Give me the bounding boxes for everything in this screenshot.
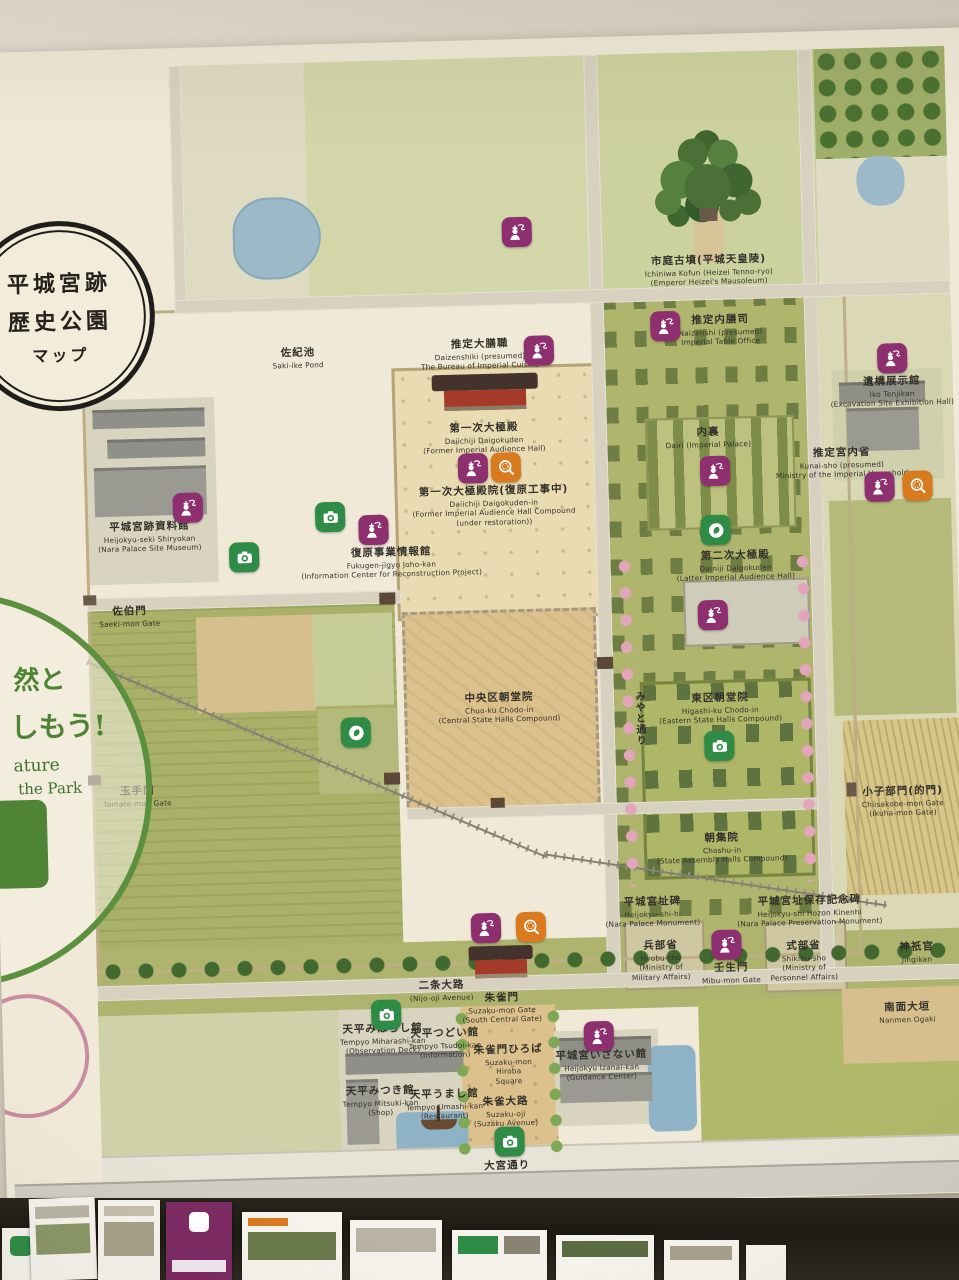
label-line: 天平つどい館 — [408, 1026, 481, 1042]
label-line: (Information) — [409, 1049, 482, 1060]
suzaku-mon-body — [475, 959, 527, 978]
map-label-iko-tenjikan: 遺構展示館Iko Tenjikan(Excavation Site Exhibi… — [830, 374, 954, 410]
label-line: Saki-ike Pond — [272, 360, 323, 371]
pamphlet-cover-art — [248, 1218, 288, 1226]
zone-southwest-lawn — [98, 1010, 342, 1166]
camera-glyph — [374, 1003, 398, 1027]
photo-spot-icon — [315, 502, 346, 533]
pamphlet — [746, 1245, 786, 1280]
label-line: 佐紀池 — [272, 346, 324, 361]
map-label-suzaku-mon: 朱雀門Suzaku-mon Gate(South Central Gate) — [462, 991, 542, 1026]
pamphlet-cover-art — [104, 1206, 154, 1216]
person-glyph — [474, 916, 498, 940]
map-label-mibu-mon: 壬生門Mibu-mon Gate — [702, 961, 761, 986]
guide-spot-icon — [700, 456, 731, 487]
nature-sign-en-2: the Park — [18, 779, 82, 799]
map-label-izanai-kan: 平城宮いざない館Heijokyu Izanai-kan(Guidance Cen… — [555, 1048, 648, 1083]
label-line: 南面大垣 — [879, 1000, 936, 1015]
map-label-shiryokan: 平城宮跡資料館Heijokyu-seki Shiryokan(Nara Pala… — [97, 519, 201, 554]
nature-sign-jp-1: 然と — [13, 659, 66, 697]
pamphlet-cover-art — [356, 1228, 436, 1252]
person-glyph — [868, 475, 892, 499]
guide-spot-icon — [711, 929, 742, 960]
person-glyph — [587, 1024, 611, 1048]
pamphlet — [166, 1202, 232, 1280]
leaf-glyph — [704, 518, 728, 542]
map-label-jingikan: 神祇官Jingikan — [899, 940, 934, 964]
map-label-fukugen-joho-kan: 復原事業情報館Fukugen-jigyo Joho-kan(Informatio… — [301, 544, 483, 581]
label-line: Saeki-mon Gate — [99, 618, 161, 629]
map-label-hozon-kinenhi: 平城宮址保存記念碑Heijokyu-shi Hozon Kinenhi(Nara… — [737, 893, 883, 929]
pamphlet-cover-art — [562, 1241, 648, 1257]
pamphlet-cover-art — [172, 1260, 226, 1272]
person-glyph — [880, 347, 904, 371]
map-label-dairi: 内裏Dairi (Imperial Palace) — [665, 425, 751, 450]
pamphlet — [242, 1212, 342, 1280]
viewing-spot-icon — [902, 470, 933, 501]
pamphlet-cover-art — [670, 1246, 732, 1260]
pamphlet — [29, 1197, 98, 1280]
map-label-tempyo-umashi-kan: 天平うまし館Tempyo Umashi-kan(Restaurant) — [406, 1087, 484, 1122]
leaf-glyph — [344, 721, 368, 745]
north-pond — [856, 155, 905, 206]
label-line: Military Affairs) — [632, 971, 691, 982]
magnifier-glyph — [494, 456, 518, 480]
pamphlet-cover-art — [35, 1223, 90, 1255]
daigokuden-hall-body — [444, 389, 526, 411]
map-label-tempyo-tsudoi-kan: 天平つどい館Tempyo Tsudoi-kan(Information) — [408, 1026, 481, 1060]
brochure-shelf — [0, 1198, 959, 1280]
guide-spot-icon — [524, 335, 555, 366]
pamphlet-cover-art — [10, 1236, 32, 1256]
guide-spot-icon — [358, 515, 389, 546]
pamphlet-cover-art — [104, 1222, 154, 1256]
label-line: Nanmen Ogaki — [879, 1014, 936, 1025]
map-label-choshu-in: 朝集院Choshu-in(State Assembly Halls Compou… — [656, 830, 788, 866]
guide-spot-icon — [650, 311, 681, 342]
camera-glyph — [318, 505, 342, 529]
pamphlet — [452, 1230, 547, 1280]
saeki-mon-gate-mark — [83, 595, 96, 605]
map-label-dainiji-daigokuden: 第二次大極殿Dainiji Daigokuden(Latter Imperial… — [676, 548, 795, 584]
person-glyph — [703, 459, 727, 483]
person-glyph — [701, 603, 725, 627]
camera-glyph — [498, 1130, 522, 1154]
map-label-ichiniwa-kofun: 市庭古墳(平城天皇陵)Ichiniwa Kofun (Heizei Tenno-… — [644, 252, 773, 288]
zone-top-right-grove — [813, 46, 947, 159]
map-label-naizenshi: 推定内膳司Naizenshi (presumed)Imperial Table … — [678, 313, 763, 348]
map-label-miyato-dori: みやと通り — [632, 691, 646, 746]
map-label-daiichiji-daigokuden: 第一次大極殿Daiichiji Daigokuden(Former Imperi… — [422, 420, 545, 456]
map-label-suzaku-oji: 朱雀大路Suzaku-oji(Suzaku Avenue) — [473, 1095, 538, 1129]
map-title-sign: 平城宮跡 歴史公園 マップ — [0, 219, 157, 414]
guide-spot-icon — [864, 471, 895, 502]
map-label-higashi-ku-chodo-in: 東区朝堂院Higashi-ku Chodo-in(Eastern State H… — [658, 690, 782, 726]
pamphlet — [350, 1220, 442, 1280]
title-line-1: 平城宮跡 — [7, 265, 112, 300]
label-line: Mibu-mon Gate — [702, 975, 761, 986]
map-label-nanmen-ogaki: 南面大垣Nanmen Ogaki — [879, 1000, 936, 1025]
map-label-heijokyu-shi-hi: 平城宮址碑Heijokyu-shi-hi(Nara Palace Monumen… — [605, 895, 701, 930]
label-line: 神祇官 — [899, 940, 934, 955]
zone-top-center-field — [303, 55, 594, 307]
izanai-pond — [647, 1045, 697, 1132]
map-label-hyobu-sho: 兵部省Hyobu-sho(Ministry ofMilitary Affairs… — [631, 939, 691, 983]
nature-spot-icon — [340, 717, 371, 748]
map-label-saeki-mon: 佐伯門Saeki-mon Gate — [99, 605, 161, 630]
photo-spot-icon — [229, 542, 260, 573]
zone-southeast-dirt — [842, 986, 959, 1064]
nature-sign-en-1: ature — [13, 755, 60, 776]
map-label-saki-ike-pond: 佐紀池Saki-ike Pond — [272, 346, 324, 370]
label-line: Personnel Affairs) — [770, 972, 838, 983]
person-glyph — [176, 496, 200, 520]
chiisakobe-mon-gate-mark — [846, 782, 856, 796]
guide-spot-icon — [471, 913, 502, 944]
camera-glyph — [708, 734, 732, 758]
photo-spot-icon — [704, 731, 735, 762]
person-glyph — [715, 933, 739, 957]
partial-pink-ring — [0, 993, 91, 1120]
label-line: Jingikan — [900, 954, 935, 964]
map-label-suzaku-mon-hiroba: 朱雀門ひろばSuzaku-monHirobaSquare — [474, 1043, 544, 1087]
map-canvas: 平城宮跡 歴史公園 マップ 然と しもう! ature the Park 佐紀池… — [0, 27, 959, 1218]
map-title-text: 平城宮跡 歴史公園 マップ — [0, 224, 152, 409]
pamphlet-cover-art — [189, 1212, 209, 1232]
viewing-spot-icon — [516, 912, 547, 943]
person-glyph — [527, 339, 551, 363]
museum-building-2 — [107, 437, 205, 459]
map-board: 平城宮跡 歴史公園 マップ 然と しもう! ature the Park 佐紀池… — [0, 27, 959, 1218]
photo-spot-icon — [371, 999, 402, 1030]
person-glyph — [654, 314, 678, 338]
pamphlet — [556, 1235, 654, 1280]
guide-spot-icon — [458, 453, 489, 484]
label-line: 朱雀門ひろば — [474, 1043, 543, 1058]
museum-building-1 — [92, 407, 204, 429]
label-line: 二条大路 — [409, 978, 473, 993]
guide-spot-icon — [877, 343, 908, 374]
label-line: Square — [474, 1075, 543, 1086]
pamphlet-cover-art — [504, 1236, 540, 1254]
farm-hut-1 — [379, 592, 395, 604]
farm-hut-4 — [491, 798, 505, 808]
camera-glyph — [232, 546, 256, 570]
map-label-shikibu-sho: 式部省Shikibu-sho(Ministry ofPersonnel Affa… — [770, 939, 839, 983]
farm-hut-2 — [597, 657, 613, 669]
pamphlet-cover-art — [248, 1232, 336, 1260]
person-glyph — [461, 457, 485, 481]
map-label-chuo-ku-chodo-in: 中央区朝堂院Chuo-ku Chodo-in(Central State Hal… — [438, 690, 561, 726]
label-line: 朱雀大路 — [473, 1095, 538, 1110]
pamphlet-cover-art — [35, 1205, 89, 1219]
guide-spot-icon — [501, 217, 532, 248]
nature-sign-jp-2: しもう! — [10, 704, 106, 746]
map-label-daizenshiki: 推定大膳職Daizenshiki (presumed)The Bureau of… — [420, 337, 539, 373]
pamphlet — [98, 1200, 160, 1280]
map-label-daiichiji-daigokuden-in: 第一次大極殿院(復原工事中)Daiichiji Daigokuden-in(Fo… — [412, 483, 576, 529]
photo-spot-icon — [494, 1126, 525, 1157]
photo-of-park-map-sign: 平城宮跡 歴史公園 マップ 然と しもう! ature the Park 佐紀池… — [0, 0, 959, 1280]
guide-spot-icon — [697, 600, 728, 631]
guide-spot-icon — [173, 492, 204, 523]
pamphlet — [664, 1240, 739, 1280]
magnifier-glyph — [519, 915, 543, 939]
viewing-spot-icon — [491, 452, 522, 483]
magnifier-glyph — [906, 474, 930, 498]
pamphlet-cover-art — [458, 1236, 498, 1254]
label-line: みやと通り — [632, 691, 646, 746]
nature-sign-pictogram — [0, 800, 49, 889]
person-glyph — [505, 220, 529, 244]
nature-spot-icon — [700, 515, 731, 546]
kofun-shrine — [699, 208, 717, 221]
farm-hut-3 — [384, 772, 400, 784]
title-line-2: 歴史公園 — [8, 303, 113, 338]
guide-spot-icon — [583, 1021, 614, 1052]
label-line: (Restaurant) — [406, 1110, 483, 1122]
title-line-3: マップ — [32, 341, 90, 366]
map-label-chiisakobe-mon: 小子部門(的門)Chiisakobe-mon Gate(Ikuha-mon Ga… — [861, 784, 944, 819]
person-glyph — [362, 518, 386, 542]
